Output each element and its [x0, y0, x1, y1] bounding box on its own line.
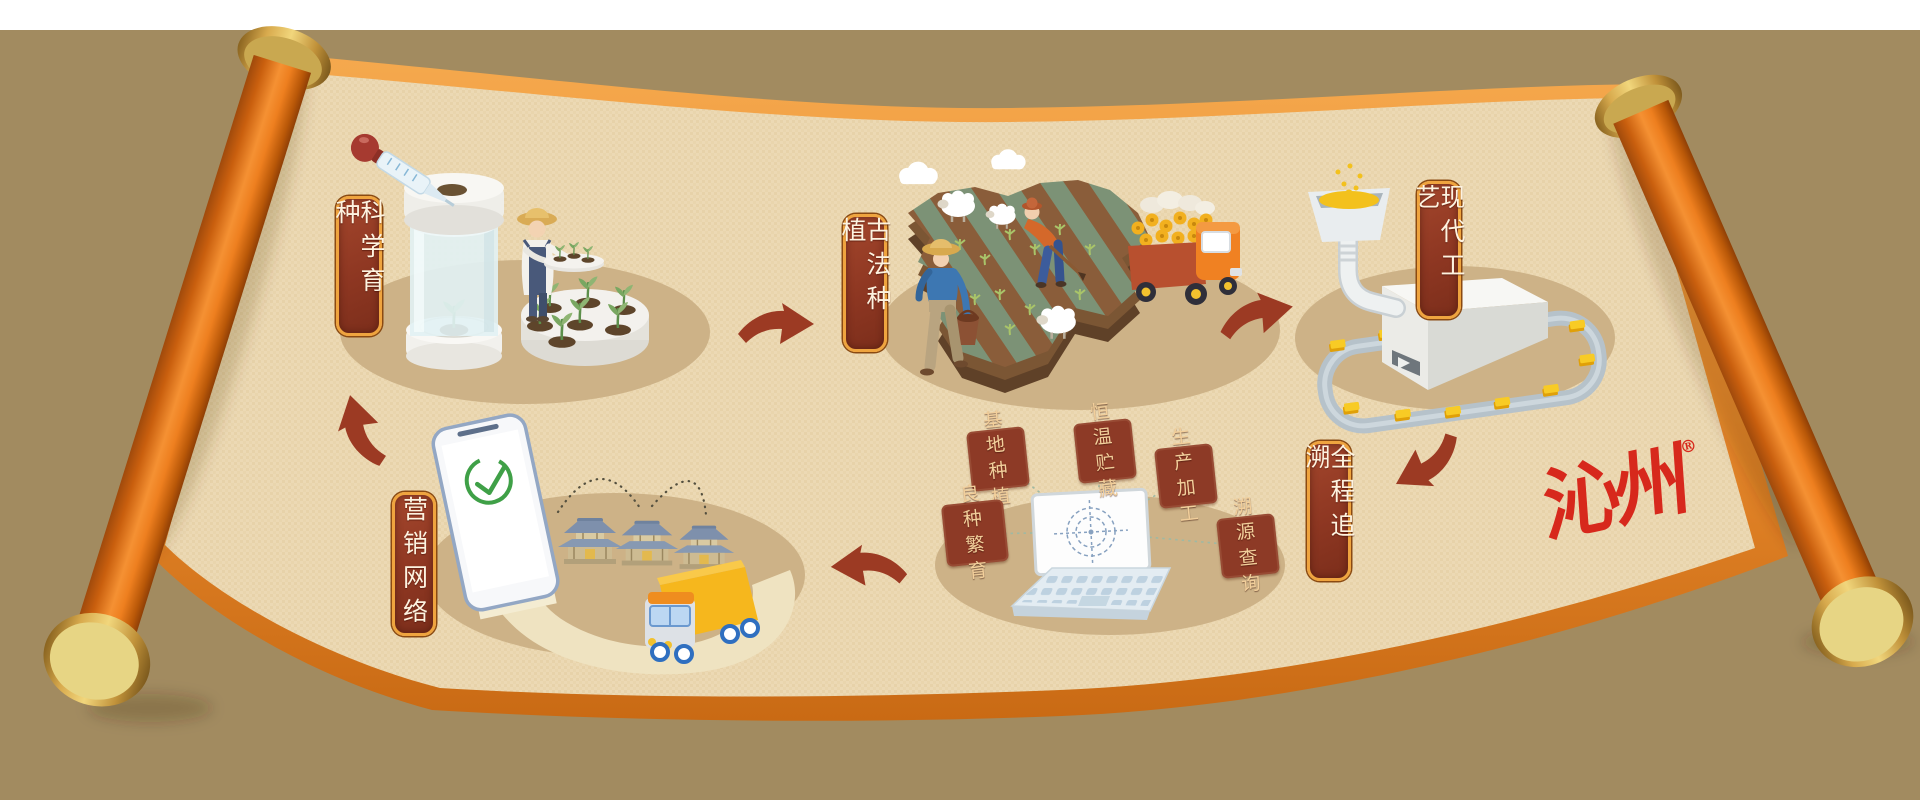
- scroll-artwork: [0, 0, 1920, 800]
- stage-plaque-scientific-breeding: 科学育种: [336, 196, 382, 336]
- stage-plaque-modern-processing: 现代工艺: [1417, 181, 1461, 319]
- scroll-poster: 科学育种 古法种植 现代工艺 全程追溯 营销网络 基地种植 恒温贮藏 生产加工 …: [0, 0, 1920, 800]
- stage-plaque-traditional-planting: 古法种植: [843, 214, 887, 352]
- stage-label: 科学育种: [334, 199, 384, 333]
- trace-tag-production-processing: 生产加工: [1154, 443, 1218, 509]
- trace-tag-trace-query: 溯源查询: [1216, 513, 1280, 579]
- stage-label: 营销网络: [402, 496, 427, 632]
- stage-plaque-full-traceability: 全程追溯: [1307, 441, 1351, 581]
- registered-mark: ®: [1678, 435, 1699, 458]
- trace-tag-seed-breeding: 良种繁育: [941, 499, 1009, 567]
- stage-label: 古法种植: [840, 217, 890, 349]
- stage-plaque-marketing-network: 营销网络: [392, 492, 436, 636]
- trace-tag-constant-temp-storage: 恒温贮藏: [1073, 418, 1137, 484]
- stage-label: 现代工艺: [1414, 184, 1464, 316]
- laptop: [1012, 489, 1170, 620]
- glass-incubator: [404, 173, 504, 370]
- stage-label: 全程追溯: [1304, 444, 1354, 578]
